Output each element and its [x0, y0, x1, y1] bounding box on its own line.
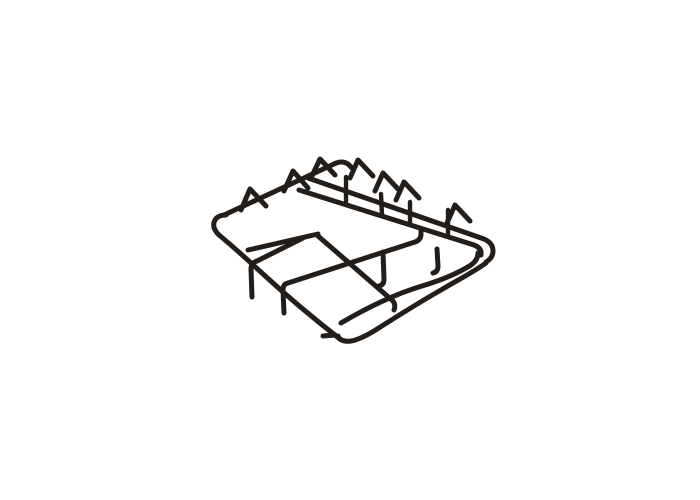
photo-background	[0, 0, 700, 500]
product-photo: Black enamelled wire gas hob pan support…	[0, 0, 700, 500]
pan-support-svg: Black enamelled wire gas hob pan support…	[0, 0, 700, 500]
foot-tab	[323, 335, 335, 336]
finger-drop-2	[381, 194, 382, 215]
